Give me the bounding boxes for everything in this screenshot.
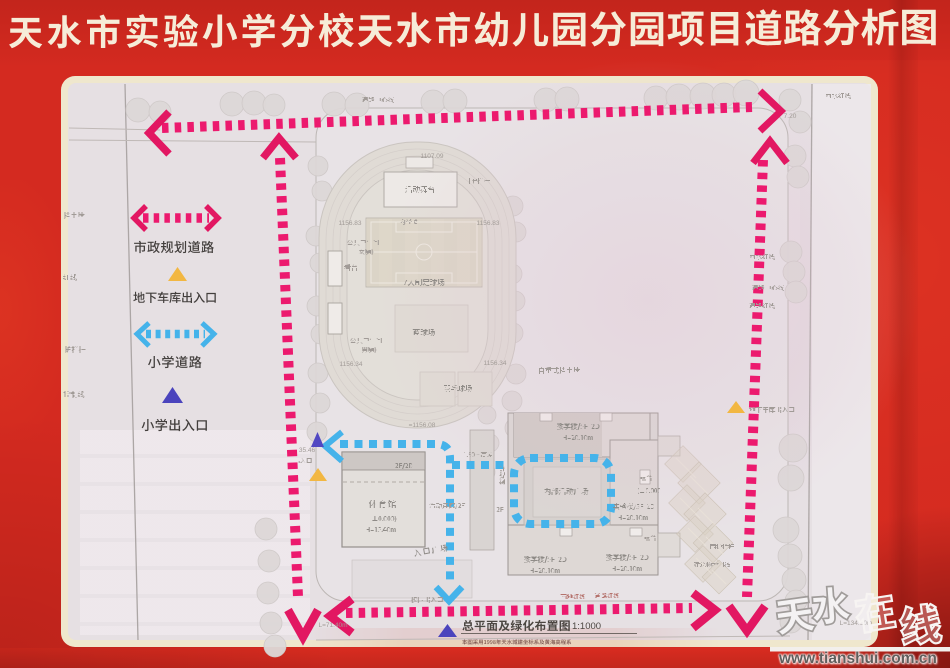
- svg-text:1156.83: 1156.83: [338, 220, 361, 227]
- svg-text:L=71.40m: L=71.40m: [318, 622, 347, 629]
- svg-text:7.20: 7.20: [784, 113, 797, 120]
- svg-text:1107.09: 1107.09: [420, 153, 443, 160]
- svg-text:1156.34: 1156.34: [339, 361, 362, 368]
- svg-text:1:1000: 1:1000: [572, 621, 601, 632]
- svg-text:=1156.08: =1156.08: [409, 422, 436, 429]
- svg-text:35.46: 35.46: [299, 447, 316, 454]
- svg-text:1156.83: 1156.83: [476, 220, 499, 227]
- svg-text:1156.34: 1156.34: [483, 360, 506, 367]
